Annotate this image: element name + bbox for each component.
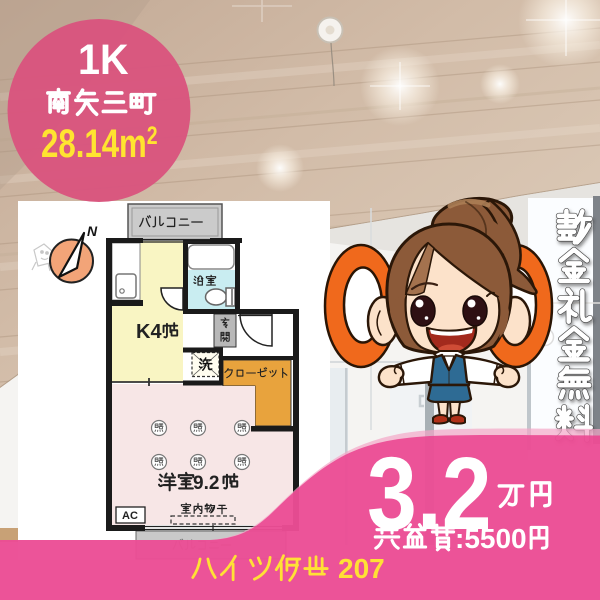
svg-text:207: 207 [338,553,385,584]
svg-text::5500: :5500 [455,523,527,554]
